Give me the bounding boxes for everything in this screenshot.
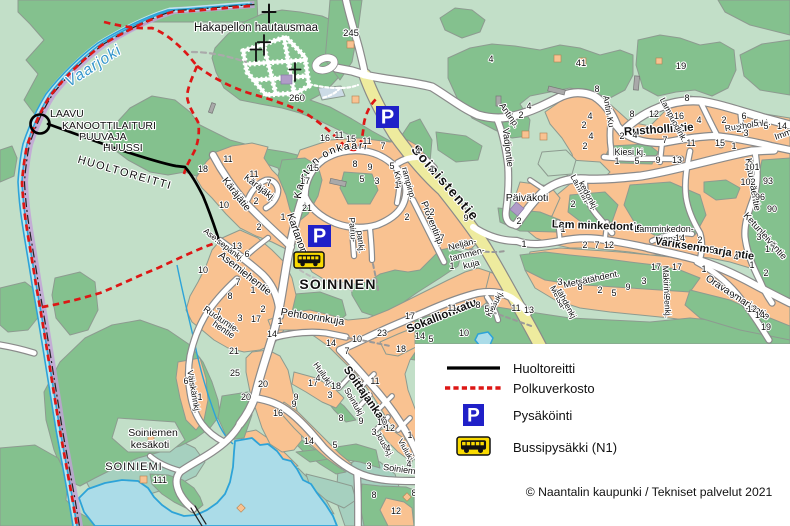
svg-text:2: 2 [429,207,434,217]
svg-text:96: 96 [755,192,765,202]
svg-text:11: 11 [447,303,456,313]
svg-text:11: 11 [249,169,258,179]
svg-text:9: 9 [367,162,372,172]
svg-text:14: 14 [755,310,765,320]
svg-text:19: 19 [676,61,687,72]
svg-text:P: P [467,406,480,427]
svg-text:101: 101 [744,162,759,172]
svg-text:2: 2 [597,285,602,295]
svg-text:© Naantalin kaupunki / Teknise: © Naantalin kaupunki / Tekniset palvelut… [526,485,773,499]
svg-text:4: 4 [526,101,531,111]
svg-text:7: 7 [216,307,221,317]
svg-text:HUUSSI: HUUSSI [103,142,143,154]
svg-text:2: 2 [256,222,261,232]
svg-text:3: 3 [374,176,379,186]
svg-text:13: 13 [672,155,682,165]
svg-text:9: 9 [291,399,296,409]
svg-text:13: 13 [232,241,242,251]
svg-text:2: 2 [516,216,521,226]
svg-text:1: 1 [429,164,434,174]
svg-text:111: 111 [153,475,167,486]
svg-text:3: 3 [237,313,242,323]
svg-text:2: 2 [736,124,741,134]
svg-text:1: 1 [407,430,412,440]
svg-text:6: 6 [665,292,670,302]
svg-text:8: 8 [475,300,480,310]
svg-text:18: 18 [198,164,208,174]
svg-text:Huoltoreitti: Huoltoreitti [513,361,575,376]
svg-text:P: P [313,226,326,248]
svg-text:1: 1 [280,212,285,222]
svg-text:pankj.: pankj. [355,230,367,253]
svg-text:7: 7 [439,233,444,243]
svg-text:14: 14 [304,436,314,446]
svg-text:2: 2 [721,115,726,125]
svg-text:10: 10 [219,200,229,210]
svg-text:4: 4 [696,115,701,125]
svg-text:5: 5 [359,174,364,184]
svg-text:1: 1 [277,316,282,326]
svg-text:23: 23 [377,328,387,338]
svg-text:260: 260 [289,93,305,104]
svg-text:Polkuverkosto: Polkuverkosto [513,381,595,396]
svg-text:5: 5 [753,118,758,128]
svg-text:9: 9 [729,290,734,300]
svg-text:1: 1 [731,141,736,151]
svg-text:1: 1 [521,239,526,249]
svg-text:1: 1 [250,285,255,295]
svg-text:7: 7 [344,346,349,356]
svg-text:16: 16 [674,111,684,121]
svg-text:2: 2 [253,196,258,206]
svg-text:14: 14 [415,331,425,341]
svg-text:8: 8 [227,291,232,301]
svg-text:Päiväkoti: Päiväkoti [506,192,549,204]
svg-text:1: 1 [614,156,619,166]
svg-text:17: 17 [672,262,682,272]
svg-text:4: 4 [733,252,738,262]
svg-text:12: 12 [385,423,395,433]
svg-text:5: 5 [611,288,616,298]
svg-text:2: 2 [581,120,586,130]
svg-text:25: 25 [230,368,240,378]
svg-text:1: 1 [197,392,202,402]
svg-text:2: 2 [582,141,587,151]
svg-text:Pysäköinti: Pysäköinti [513,408,572,423]
svg-text:16: 16 [320,133,330,143]
svg-text:4: 4 [488,54,493,64]
svg-text:90: 90 [767,204,777,214]
svg-text:6: 6 [244,249,249,259]
svg-text:3: 3 [557,277,562,287]
svg-text:41: 41 [576,58,587,69]
svg-text:4: 4 [406,459,411,469]
svg-text:14: 14 [326,338,336,348]
svg-text:14: 14 [267,329,277,339]
svg-text:11: 11 [370,376,379,386]
svg-text:10: 10 [198,265,208,275]
svg-text:14: 14 [777,121,787,131]
svg-text:17: 17 [405,311,415,321]
svg-text:8: 8 [338,413,343,423]
svg-text:7: 7 [235,277,240,287]
svg-text:9: 9 [625,282,630,292]
svg-text:11: 11 [334,130,343,140]
svg-text:15: 15 [715,138,725,148]
svg-text:3: 3 [371,427,376,437]
svg-text:2: 2 [570,199,575,209]
svg-text:3: 3 [366,461,371,471]
svg-text:2: 2 [763,268,768,278]
svg-text:9: 9 [358,416,363,426]
svg-text:2: 2 [404,212,409,222]
svg-text:2: 2 [260,304,265,314]
svg-text:93: 93 [763,176,773,186]
svg-text:8: 8 [577,282,582,292]
svg-text:6: 6 [741,111,746,121]
svg-text:LAAVU: LAAVU [50,108,84,120]
svg-text:11: 11 [223,154,232,164]
svg-text:1: 1 [449,261,454,271]
svg-text:21: 21 [229,346,239,356]
svg-text:245: 245 [343,28,359,39]
svg-text:8: 8 [352,159,357,169]
svg-text:20: 20 [241,392,251,402]
svg-text:1: 1 [394,180,399,190]
svg-text:8: 8 [684,93,689,103]
svg-text:20: 20 [258,379,268,389]
svg-text:14: 14 [675,233,685,243]
svg-text:2: 2 [518,110,523,120]
svg-text:5: 5 [332,440,337,450]
svg-text:7: 7 [266,178,271,188]
svg-text:SOININEN: SOININEN [299,276,376,292]
svg-text:17: 17 [765,244,775,254]
svg-text:5: 5 [634,156,639,166]
svg-text:17: 17 [251,314,261,324]
svg-text:16: 16 [273,408,283,418]
svg-text:5: 5 [428,334,433,344]
svg-text:1: 1 [560,224,565,234]
svg-text:8: 8 [594,84,599,94]
svg-text:15: 15 [346,134,356,144]
svg-text:Bussipysäkki (N1): Bussipysäkki (N1) [513,440,617,455]
svg-text:11: 11 [686,138,695,148]
svg-text:4: 4 [415,146,420,156]
svg-text:2: 2 [619,131,624,141]
svg-text:SOINIEMI: SOINIEMI [105,461,163,473]
svg-text:3: 3 [641,276,646,286]
svg-text:5: 5 [709,245,714,255]
svg-text:1: 1 [749,260,754,270]
svg-text:9: 9 [463,213,468,223]
svg-text:102: 102 [740,177,755,187]
svg-text:kesäkoti: kesäkoti [131,439,170,451]
svg-text:7: 7 [594,240,599,250]
svg-text:4: 4 [587,111,592,121]
svg-text:5: 5 [389,161,394,171]
svg-text:21: 21 [302,203,312,213]
svg-text:1: 1 [701,264,706,274]
svg-text:10: 10 [352,334,362,344]
svg-text:Soiniemen: Soiniemen [128,427,178,439]
svg-text:11: 11 [511,303,520,313]
svg-text:17: 17 [651,262,661,272]
svg-text:2: 2 [697,235,702,245]
svg-text:13: 13 [524,305,534,315]
svg-text:8: 8 [371,490,376,500]
svg-text:12: 12 [649,109,659,119]
svg-text:7: 7 [492,302,497,312]
svg-text:8: 8 [629,109,634,119]
svg-text:4: 4 [588,131,593,141]
svg-text:7: 7 [380,141,385,151]
svg-text:4: 4 [385,443,390,453]
svg-text:Hakapellon hautausmaa: Hakapellon hautausmaa [194,22,319,34]
svg-text:3: 3 [756,232,761,242]
svg-text:5: 5 [484,304,489,314]
svg-text:4: 4 [315,373,320,383]
svg-text:19: 19 [761,322,771,332]
svg-text:5: 5 [763,121,768,131]
svg-text:18: 18 [396,344,406,354]
svg-text:9: 9 [655,155,660,165]
svg-text:17: 17 [300,176,310,186]
svg-text:11: 11 [362,136,371,146]
svg-text:3: 3 [327,390,332,400]
svg-text:4: 4 [632,130,637,140]
svg-text:12: 12 [391,506,401,516]
svg-text:15: 15 [309,163,319,173]
svg-text:12: 12 [604,240,614,250]
svg-text:2: 2 [582,240,587,250]
svg-text:10: 10 [459,328,469,338]
svg-text:7: 7 [662,135,667,145]
svg-text:P: P [381,107,394,129]
svg-text:3: 3 [743,128,748,138]
svg-text:6: 6 [183,376,188,386]
